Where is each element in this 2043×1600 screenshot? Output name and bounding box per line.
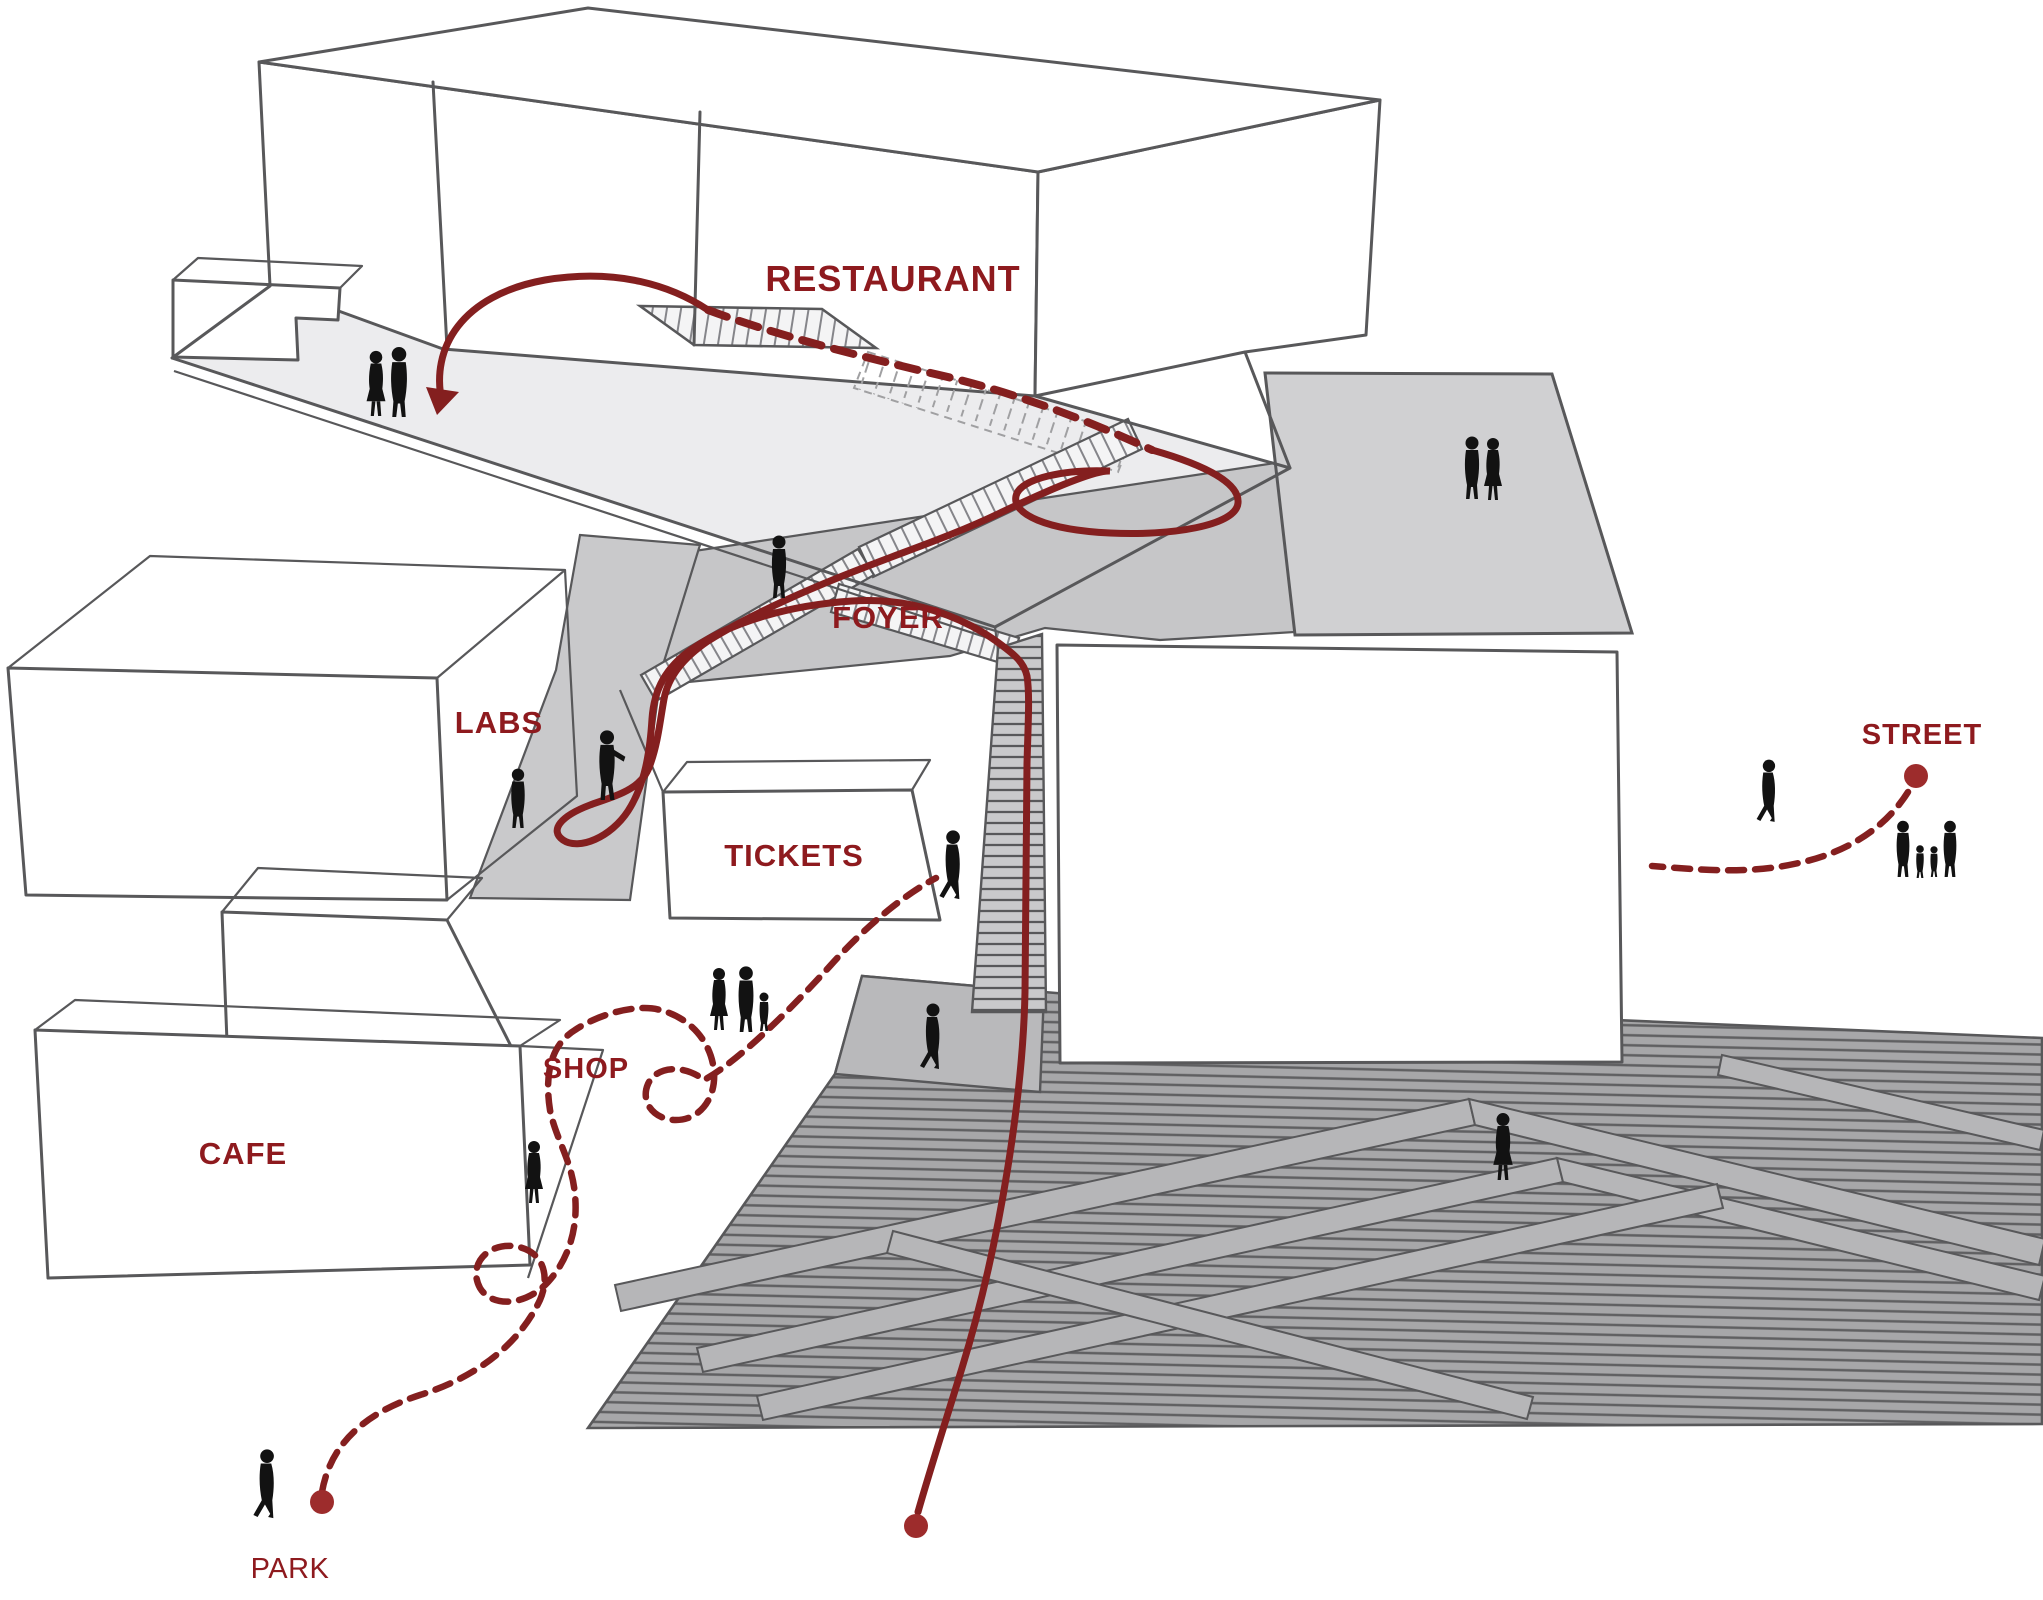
label-foyer: FOYER	[832, 600, 944, 635]
person-figure	[1944, 821, 1957, 877]
label-park: PARK	[251, 1553, 330, 1585]
person-figure	[739, 966, 754, 1032]
person-figure	[253, 1449, 273, 1518]
street-entry-dot	[1904, 764, 1928, 788]
label-cafe: CAFE	[199, 1136, 287, 1171]
labs-box-top	[8, 556, 565, 678]
right-roof-plane	[1265, 373, 1632, 635]
person-figure	[1930, 846, 1937, 877]
street-route	[1652, 792, 1908, 870]
person-figure	[1897, 821, 1910, 877]
tickets-box-top	[663, 760, 930, 792]
park-entry-dot	[310, 1490, 334, 1514]
person-figure	[1757, 760, 1776, 822]
main-hall-box	[1057, 645, 1622, 1063]
label-tickets: TICKETS	[724, 838, 864, 873]
circulation-diagram: RESTAURANT FOYER LABS TICKETS SHOP CAFE …	[0, 0, 2043, 1600]
labs-box-front	[8, 668, 447, 900]
label-street: STREET	[1862, 719, 1982, 751]
route-end-dot	[904, 1514, 928, 1538]
grand-stair-to-plaza	[972, 634, 1046, 1012]
person-figure	[710, 968, 728, 1030]
label-restaurant: RESTAURANT	[765, 258, 1020, 299]
person-figure	[760, 993, 769, 1032]
diagram-stage: RESTAURANT FOYER LABS TICKETS SHOP CAFE …	[0, 0, 2043, 1600]
person-figure	[939, 830, 959, 899]
person-figure	[1916, 845, 1924, 878]
label-shop: SHOP	[543, 1053, 629, 1085]
label-labs: LABS	[455, 705, 543, 740]
